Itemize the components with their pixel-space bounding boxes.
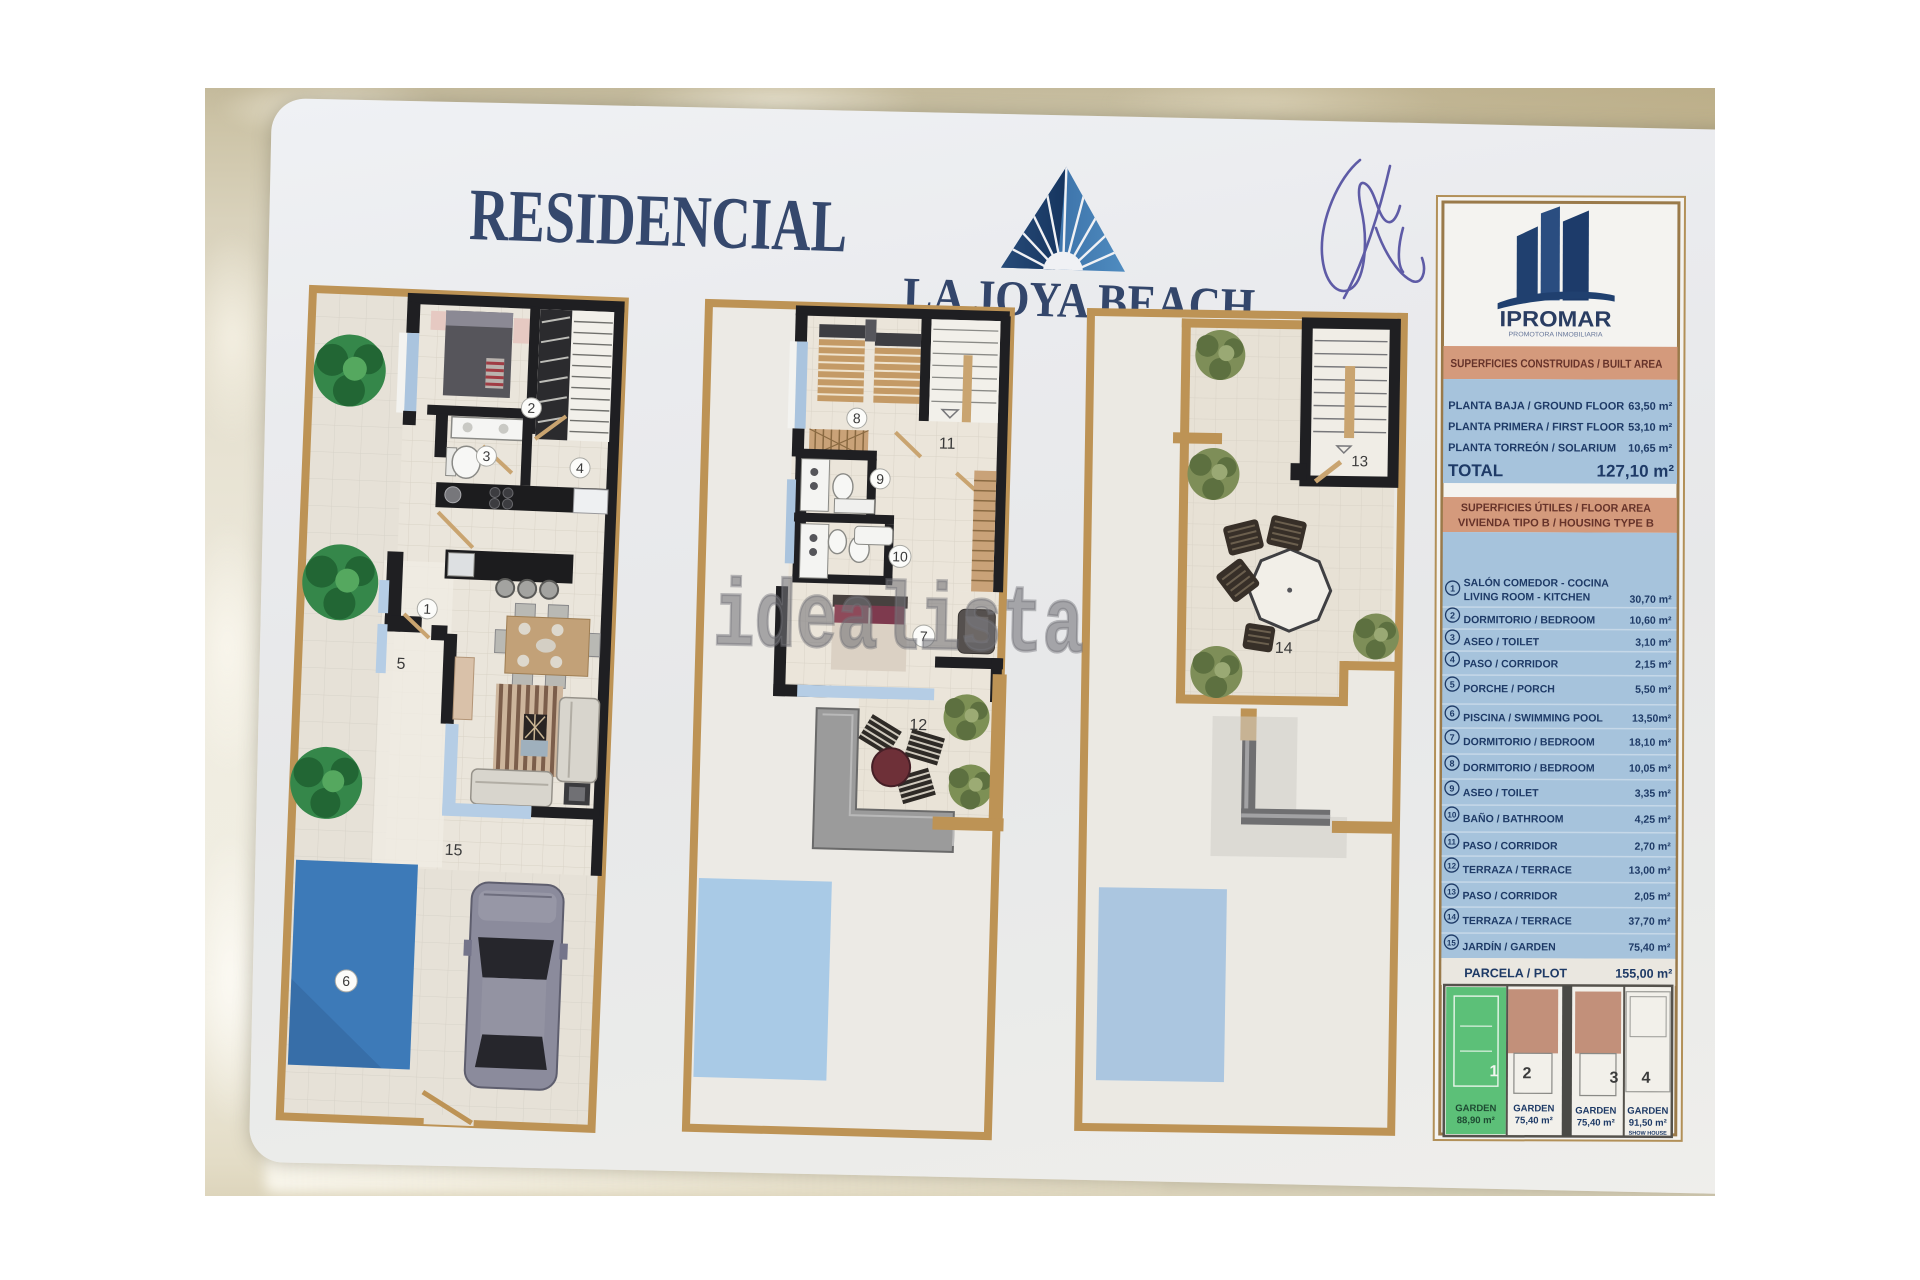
svg-text:VIVIENDA TIPO B / HOUSING TYPE: VIVIENDA TIPO B / HOUSING TYPE B (1458, 517, 1654, 530)
svg-text:2: 2 (527, 400, 536, 416)
svg-text:1: 1 (1489, 1063, 1498, 1080)
svg-text:PROMOTORA INMOBILIARIA: PROMOTORA INMOBILIARIA (1509, 331, 1604, 338)
svg-text:JARDÍN / GARDEN: JARDÍN / GARDEN (1462, 940, 1555, 953)
svg-text:14: 14 (1275, 640, 1293, 657)
svg-text:DORMITORIO / BEDROOM: DORMITORIO / BEDROOM (1463, 762, 1595, 774)
svg-text:75,40 m²: 75,40 m² (1577, 1117, 1615, 1128)
svg-text:PLANTA BAJA / GROUND FLOOR: PLANTA BAJA / GROUND FLOOR (1448, 400, 1624, 413)
svg-text:6: 6 (1450, 709, 1455, 719)
svg-text:63,50 m²: 63,50 m² (1628, 401, 1672, 413)
svg-text:2,15 m²: 2,15 m² (1635, 659, 1672, 671)
svg-text:12: 12 (909, 717, 927, 734)
svg-text:TERRAZA / TERRACE: TERRAZA / TERRACE (1463, 864, 1572, 876)
svg-text:PASO / CORRIDOR: PASO / CORRIDOR (1463, 890, 1558, 902)
svg-text:7: 7 (1450, 733, 1455, 743)
svg-text:13,00 m²: 13,00 m² (1629, 865, 1672, 877)
svg-text:4: 4 (576, 460, 585, 476)
svg-text:GARDEN: GARDEN (1455, 1103, 1496, 1114)
svg-text:idealista: idealista (712, 565, 1085, 680)
svg-text:75,40 m²: 75,40 m² (1628, 942, 1671, 954)
svg-text:1: 1 (423, 601, 432, 617)
svg-text:SALÓN COMEDOR - COCINA: SALÓN COMEDOR - COCINA (1464, 576, 1610, 590)
svg-text:8: 8 (1449, 759, 1454, 769)
svg-text:PASO / CORRIDOR: PASO / CORRIDOR (1463, 840, 1558, 852)
svg-text:30,70 m²: 30,70 m² (1630, 594, 1673, 606)
svg-text:4: 4 (1450, 655, 1455, 665)
svg-text:14: 14 (1447, 913, 1456, 922)
svg-text:2: 2 (1522, 1065, 1531, 1082)
svg-text:PORCHE / PORCH: PORCHE / PORCH (1463, 683, 1555, 695)
svg-text:91,50 m²: 91,50 m² (1629, 1118, 1667, 1129)
svg-text:18,10 m²: 18,10 m² (1629, 737, 1672, 749)
svg-text:5: 5 (396, 656, 406, 673)
svg-text:10: 10 (1447, 811, 1456, 820)
svg-text:5: 5 (1450, 680, 1455, 690)
svg-text:GARDEN: GARDEN (1575, 1105, 1616, 1116)
svg-text:ASEO / TOILET: ASEO / TOILET (1463, 636, 1539, 648)
svg-text:88,90 m²: 88,90 m² (1457, 1115, 1495, 1126)
svg-text:127,10 m²: 127,10 m² (1597, 462, 1675, 481)
svg-text:12: 12 (1447, 862, 1456, 871)
svg-text:PLANTA TORREÓN / SOLARIUM: PLANTA TORREÓN / SOLARIUM (1448, 441, 1616, 455)
svg-text:10: 10 (892, 548, 908, 564)
svg-text:53,10 m²: 53,10 m² (1628, 422, 1672, 434)
svg-text:PISCINA / SWIMMING POOL: PISCINA / SWIMMING POOL (1463, 712, 1603, 724)
svg-text:2: 2 (1450, 611, 1455, 621)
svg-text:15: 15 (1447, 939, 1456, 948)
svg-text:TOTAL: TOTAL (1448, 461, 1503, 480)
svg-text:75,40 m²: 75,40 m² (1515, 1115, 1553, 1126)
svg-text:IPROMAR: IPROMAR (1500, 306, 1612, 331)
svg-text:1: 1 (1450, 584, 1455, 594)
svg-text:11: 11 (1447, 838, 1456, 847)
svg-text:10,60 m²: 10,60 m² (1629, 615, 1672, 627)
svg-text:9: 9 (1449, 784, 1454, 794)
svg-text:GARDEN: GARDEN (1627, 1106, 1668, 1117)
svg-text:3: 3 (1450, 633, 1455, 643)
svg-text:PARCELA / PLOT: PARCELA / PLOT (1464, 966, 1567, 980)
svg-text:GARDEN: GARDEN (1513, 1103, 1554, 1114)
svg-text:BAÑO / BATHROOM: BAÑO / BATHROOM (1463, 812, 1564, 825)
svg-text:9: 9 (876, 471, 884, 487)
svg-text:13: 13 (1351, 453, 1368, 470)
svg-text:SUPERFICIES CONSTRUIDAS / BUIL: SUPERFICIES CONSTRUIDAS / BUILT AREA (1450, 358, 1662, 371)
svg-text:3,10 m²: 3,10 m² (1635, 637, 1672, 649)
svg-text:SUPERFICIES ÚTILES / FLOOR ARE: SUPERFICIES ÚTILES / FLOOR AREA (1461, 501, 1651, 515)
svg-text:13,50m²: 13,50m² (1632, 713, 1672, 725)
svg-text:SHOW HOUSE: SHOW HOUSE (1629, 1131, 1668, 1137)
svg-text:10,65 m²: 10,65 m² (1628, 443, 1672, 455)
svg-text:DORMITORIO / BEDROOM: DORMITORIO / BEDROOM (1463, 736, 1595, 748)
svg-text:13: 13 (1447, 888, 1456, 897)
svg-text:11: 11 (939, 435, 956, 452)
svg-text:PASO / CORRIDOR: PASO / CORRIDOR (1463, 658, 1558, 670)
svg-text:155,00 m²: 155,00 m² (1615, 967, 1672, 981)
svg-text:10,05 m²: 10,05 m² (1629, 763, 1672, 775)
svg-text:TERRAZA / TERRACE: TERRAZA / TERRACE (1462, 915, 1571, 927)
svg-text:2,70 m²: 2,70 m² (1635, 841, 1672, 853)
svg-text:15: 15 (444, 842, 463, 860)
svg-text:5,50 m²: 5,50 m² (1635, 684, 1672, 696)
svg-text:4: 4 (1641, 1070, 1650, 1087)
svg-text:8: 8 (853, 410, 861, 426)
svg-text:2,05 m²: 2,05 m² (1634, 891, 1671, 903)
svg-text:RESIDENCIAL: RESIDENCIAL (468, 174, 849, 268)
svg-text:PLANTA PRIMERA / FIRST FLOOR: PLANTA PRIMERA / FIRST FLOOR (1448, 421, 1624, 434)
svg-text:LIVING ROOM - KITCHEN: LIVING ROOM - KITCHEN (1464, 591, 1591, 603)
svg-text:3: 3 (1609, 1070, 1618, 1087)
svg-text:6: 6 (342, 973, 351, 989)
svg-text:4,25 m²: 4,25 m² (1635, 814, 1672, 826)
svg-text:3,35 m²: 3,35 m² (1635, 788, 1672, 800)
svg-text:DORMITORIO / BEDROOM: DORMITORIO / BEDROOM (1463, 614, 1595, 626)
svg-text:37,70 m²: 37,70 m² (1628, 916, 1671, 928)
svg-text:3: 3 (482, 448, 491, 464)
svg-text:ASEO / TOILET: ASEO / TOILET (1463, 787, 1539, 799)
